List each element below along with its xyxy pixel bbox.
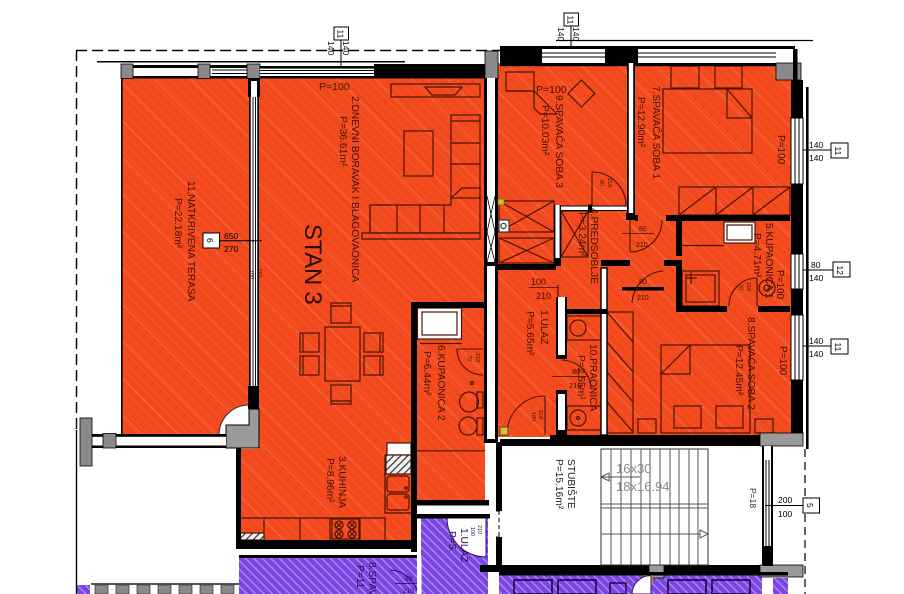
svg-text:STAN 3: STAN 3 [299,224,326,304]
svg-text:100: 100 [248,270,254,279]
svg-text:P=5.65m²: P=5.65m² [524,311,535,356]
svg-text:8.SPAV: 8.SPAV [366,562,377,594]
svg-text:P=10.03m²: P=10.03m² [539,105,550,156]
svg-text:11: 11 [833,343,843,352]
svg-text:P=5.: P=5. [446,531,457,552]
svg-text:140: 140 [809,140,823,150]
svg-text:P=8.96m²: P=8.96m² [324,458,335,503]
svg-text:P=11: P=11 [354,565,365,589]
svg-text:7.SPAVAĆA SOBA 1: 7.SPAVAĆA SOBA 1 [650,86,663,179]
svg-text:P=15.16m²: P=15.16m² [553,459,564,510]
svg-text:4.PREDSOBLJE: 4.PREDSOBLJE [588,208,599,284]
svg-text:18x16.94: 18x16.94 [616,479,670,494]
svg-text:8.SPAVAĆA SOBA 2: 8.SPAVAĆA SOBA 2 [745,317,758,410]
svg-text:6: 6 [205,238,215,243]
svg-text:80: 80 [639,279,647,286]
svg-text:140: 140 [809,153,823,163]
svg-text:P=2.55m²: P=2.55m² [575,355,586,400]
svg-text:11: 11 [833,147,843,156]
svg-text:11: 11 [566,16,576,25]
svg-text:P=12.45m²: P=12.45m² [733,345,744,396]
svg-text:P=100: P=100 [536,84,567,96]
svg-text:140: 140 [341,41,351,55]
svg-text:P=12.90m²: P=12.90m² [635,97,646,148]
svg-text:210: 210 [476,525,482,534]
svg-text:200: 200 [778,495,792,505]
svg-text:10.PRAONICA: 10.PRAONICA [587,344,598,412]
svg-text:5.KUPAONICA 1: 5.KUPAONICA 1 [763,223,774,299]
svg-text:210: 210 [606,178,612,187]
svg-text:210: 210 [256,268,262,277]
svg-text:12: 12 [835,266,845,276]
svg-text:140: 140 [809,349,823,359]
svg-text:140: 140 [571,27,581,41]
svg-text:P=100: P=100 [319,81,350,93]
svg-text:2.DNEVNI BORAVAK I BLAGOVAONIC: 2.DNEVNI BORAVAK I BLAGOVAONICA [349,96,360,282]
svg-text:140: 140 [556,27,566,41]
svg-text:P=3.24m²: P=3.24m² [576,212,587,257]
svg-text:270: 270 [224,244,238,254]
svg-text:650: 650 [224,231,238,241]
svg-text:210: 210 [536,291,551,301]
svg-text:80: 80 [405,576,413,583]
svg-text:P=6.44m²: P=6.44m² [421,351,432,396]
svg-text:210: 210 [745,282,751,291]
svg-text:11: 11 [336,30,346,39]
svg-text:140: 140 [326,41,336,55]
svg-text:11.NATKRIVENA TERASA: 11.NATKRIVENA TERASA [185,181,196,302]
svg-text:P=100: P=100 [777,346,788,376]
svg-text:70: 70 [737,284,743,290]
svg-text:210: 210 [636,242,648,249]
svg-text:210: 210 [403,588,414,594]
svg-text:100: 100 [530,412,536,421]
svg-text:210: 210 [637,295,649,302]
svg-text:6.KUPAONICA 2: 6.KUPAONICA 2 [435,345,446,421]
svg-text:100: 100 [531,277,546,287]
svg-text:80: 80 [811,260,821,270]
svg-text:140: 140 [809,273,823,283]
svg-text:P=100: P=100 [774,270,785,300]
svg-text:80: 80 [572,367,580,376]
svg-text:80: 80 [598,180,604,186]
svg-text:P=18: P=18 [748,488,758,508]
svg-text:1.ULAZ: 1.ULAZ [458,528,469,563]
svg-text:9.SPAVAĆA SOBA 3: 9.SPAVAĆA SOBA 3 [553,95,566,188]
svg-text:3.KUHINJA: 3.KUHINJA [336,456,347,508]
svg-text:P=4.71m²: P=4.71m² [751,233,762,278]
svg-text:100: 100 [778,509,792,519]
svg-text:70: 70 [466,355,472,361]
svg-text:140: 140 [809,336,823,346]
svg-text:16x30: 16x30 [616,461,651,476]
svg-text:1.ULAZ: 1.ULAZ [538,310,549,345]
svg-text:210: 210 [474,353,480,362]
svg-text:STUBIŠTE: STUBIŠTE [565,459,578,509]
svg-text:210: 210 [569,381,582,390]
svg-text:P=36.61m²: P=36.61m² [337,116,348,167]
svg-text:P=22.18m²: P=22.18m² [172,198,183,249]
svg-text:210: 210 [537,410,543,419]
svg-text:P=100: P=100 [775,135,786,165]
svg-text:5: 5 [805,503,815,508]
svg-text:80: 80 [639,226,647,233]
